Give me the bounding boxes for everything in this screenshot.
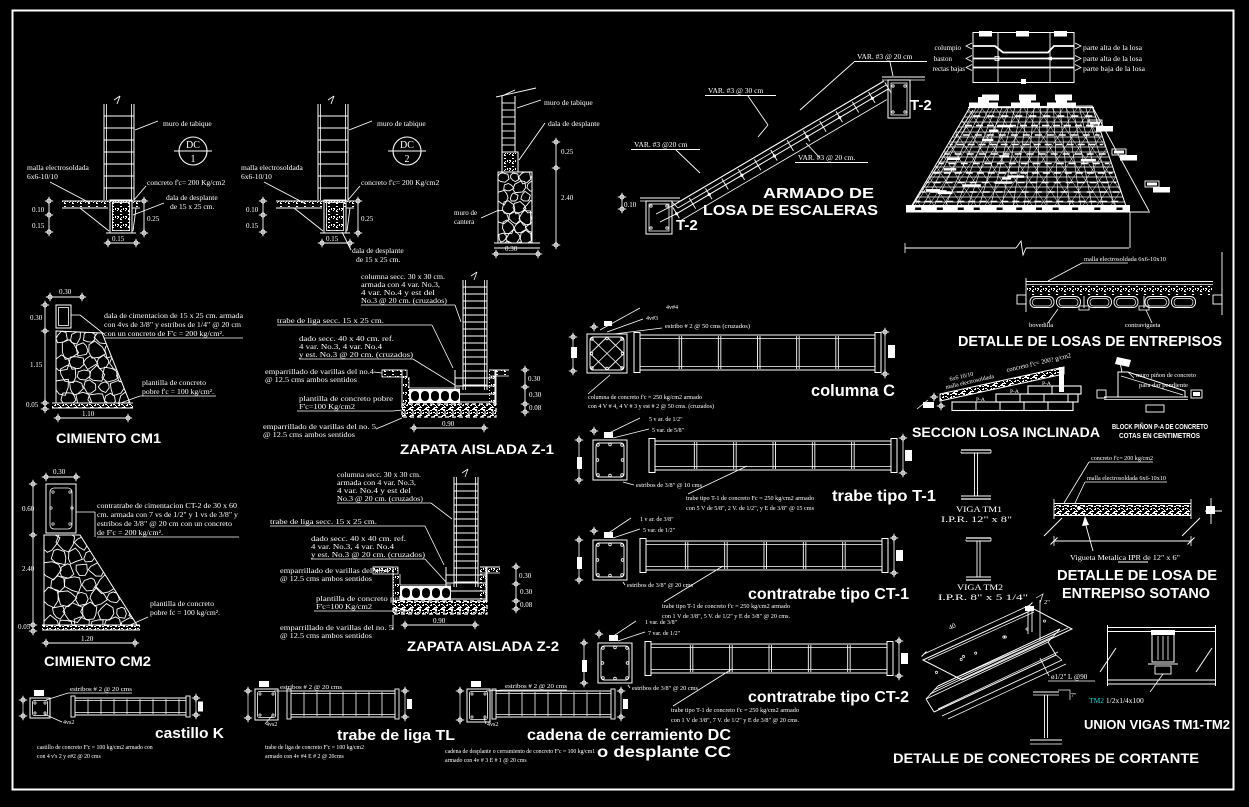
svg-text:para dar pendiente: para dar pendiente: [1139, 382, 1188, 389]
svg-text:0.05: 0.05: [18, 623, 31, 631]
svg-text:F'c=100 Kg/cm2: F'c=100 Kg/cm2: [299, 402, 355, 411]
svg-text:TM2 1/2x1/4x100: TM2 1/2x1/4x100: [1089, 696, 1144, 705]
svg-text:0.08: 0.08: [520, 601, 533, 609]
svg-text:I.P.R. 12" x 8": I.P.R. 12" x 8": [941, 514, 1012, 524]
svg-text:pobre fc = 100 kg/cm².: pobre fc = 100 kg/cm².: [150, 609, 220, 617]
svg-text:y est. No.3 @ 20 cm. (cruzad: y est. No.3 @ 20 cm. (cruzados): [299, 350, 414, 359]
svg-text:0.05: 0.05: [26, 401, 39, 409]
svg-text:DETALLE DE CONECTORES DE CORTA: DETALLE DE CONECTORES DE CORTANTE: [893, 751, 1199, 766]
svg-text:SECCION LOSA INCLINADA: SECCION LOSA INCLINADA: [912, 424, 1100, 440]
svg-text:4vs2: 4vs2: [266, 722, 277, 728]
svg-text:DETALLE DE LOSA DE: DETALLE DE LOSA DE: [1057, 567, 1217, 584]
svg-text:0.30: 0.30: [505, 245, 518, 253]
svg-text:@ 12.5 cms ambos sentidos: @ 12.5 cms ambos sentidos: [280, 631, 372, 640]
svg-text:P-A: P-A: [1042, 381, 1051, 387]
svg-text:trabe de liga de concreto F'c: trabe de liga de concreto F'c = 100 kg/c…: [265, 745, 364, 751]
svg-text:bovedilla: bovedilla: [1029, 322, 1053, 329]
svg-text:Vigueta Metalica IPR de 12: Vigueta Metalica IPR de 12" x 6": [1070, 553, 1180, 562]
svg-text:VAR. #3 @ 30 cm: VAR. #3 @ 30 cm: [708, 86, 763, 95]
svg-text:DC: DC: [400, 140, 414, 151]
svg-text:LOSA DE ESCALERAS: LOSA DE ESCALERAS: [703, 203, 878, 219]
svg-text:CIMIENTO CM2: CIMIENTO CM2: [44, 654, 151, 669]
svg-text:BLOCK PIÑON P-A DE CONCRETO: BLOCK PIÑON P-A DE CONCRETO: [1112, 422, 1208, 431]
svg-text:trabe tipo T-1: trabe tipo T-1: [832, 488, 936, 505]
svg-text:con 4 v's 2 y e#2 @ 20 cms: con 4 v's 2 y e#2 @ 20 cms: [37, 754, 101, 760]
svg-text:muro de tabique: muro de tabique: [544, 98, 593, 107]
svg-text:ENTREPISO SOTANO: ENTREPISO SOTANO: [1062, 585, 1210, 602]
svg-text:T-2: T-2: [910, 97, 932, 114]
svg-text:ø1/2" L @90: ø1/2" L @90: [1051, 673, 1088, 681]
svg-text:estribos # 2 @ 20 cms: estribos # 2 @ 20 cms: [505, 684, 568, 690]
svg-text:0.25: 0.25: [561, 148, 574, 156]
svg-text:0.15: 0.15: [112, 235, 125, 243]
svg-text:1.15: 1.15: [30, 361, 43, 369]
svg-text:0.30: 0.30: [30, 314, 43, 322]
svg-text:0.30: 0.30: [528, 375, 541, 383]
svg-text:4v#4: 4v#4: [666, 305, 678, 311]
svg-text:0.30: 0.30: [519, 572, 532, 580]
svg-text:VAR. #3 @ 20 cm: VAR. #3 @ 20 cm: [857, 52, 912, 61]
svg-text:de 15 x 25 cm.: de 15 x 25 cm.: [170, 202, 214, 211]
svg-text:@ 12.5 cms ambos sentidos: @ 12.5 cms ambos sentidos: [280, 574, 372, 583]
svg-text:muro de tabique: muro de tabique: [163, 119, 212, 128]
svg-text:0.10: 0.10: [624, 201, 637, 209]
svg-text:columna secc. 30 x 30 cm.: columna secc. 30 x 30 cm.: [337, 471, 421, 479]
svg-text:columna C: columna C: [811, 381, 895, 400]
svg-text:0.30: 0.30: [529, 391, 542, 399]
svg-text:0.30: 0.30: [520, 588, 533, 596]
svg-text:0.90: 0.90: [433, 617, 446, 625]
svg-text:cm. armada con 7 vs de 1/2" y: cm. armada con 7 vs de 1/2" y 1 vs de 3/…: [97, 511, 239, 519]
svg-text:armado con 4v #4 E # 2 @ 20cms: armado con 4v #4 E # 2 @ 20cms: [265, 754, 344, 760]
svg-text:4vs2: 4vs2: [63, 720, 74, 726]
svg-text:P-A: P-A: [1010, 389, 1019, 395]
svg-text:VIGA TM1: VIGA TM1: [956, 504, 1002, 514]
svg-text:7": 7": [1071, 693, 1077, 699]
svg-text:cadena de cerramiento DC: cadena de cerramiento DC: [527, 727, 731, 744]
svg-text:estribos # 2 @ 20 cms: estribos # 2 @ 20 cms: [70, 687, 133, 693]
svg-text:estribos # 2 @ 20 cms: estribos # 2 @ 20 cms: [280, 685, 343, 691]
svg-text:UNION VIGAS TM1-TM2: UNION VIGAS TM1-TM2: [1084, 717, 1230, 732]
svg-text:1 v ar. de 3/8": 1 v ar. de 3/8": [640, 517, 674, 523]
svg-text:estribos de 3/8" @ 10 cms: estribos de 3/8" @ 10 cms: [636, 483, 703, 489]
svg-text:0.15: 0.15: [326, 235, 339, 243]
svg-text:4vs2: 4vs2: [487, 722, 498, 728]
svg-text:con 1 V de 3/8", 7 V. de 1/2": con 1 V de 3/8", 7 V. de 1/2" y E de 3/8…: [671, 718, 800, 724]
svg-text:trabe de liga secc. 15 x 25 c: trabe de liga secc. 15 x 25 cm.: [270, 517, 377, 526]
svg-text:7 var. de 1/2": 7 var. de 1/2": [648, 631, 681, 637]
svg-text:contratrabe de cimentacion CT-: contratrabe de cimentacion CT-2 de 30 x …: [97, 502, 238, 510]
svg-text:0.08: 0.08: [529, 404, 542, 412]
svg-text:ZAPATA AISLADA Z-2: ZAPATA AISLADA Z-2: [407, 638, 559, 654]
svg-text:0.90: 0.90: [442, 420, 455, 428]
svg-text:@ 12.5 cms ambos sentidos: @ 12.5 cms ambos sentidos: [263, 430, 355, 439]
svg-text:2": 2": [1044, 599, 1050, 606]
svg-text:ARMADO DE: ARMADO DE: [763, 186, 874, 202]
svg-text:0.15: 0.15: [32, 222, 45, 230]
svg-text:columna de concreto f'c = 250: columna de concreto f'c = 250 kg/cm2 arm…: [588, 394, 702, 401]
svg-text:I.P.R. 8" x 5 1/4": I.P.R. 8" x 5 1/4": [938, 592, 1028, 602]
svg-text:contravigueta: contravigueta: [1125, 322, 1160, 329]
svg-text:ZAPATA AISLADA Z-1: ZAPATA AISLADA Z-1: [400, 441, 554, 457]
svg-text:malla electrosoldada 6x6-10x10: malla electrosoldada 6x6-10x10: [1087, 475, 1166, 482]
svg-text:y est. No.3 @ 20 cm. (cruzad: y est. No.3 @ 20 cm. (cruzados): [311, 550, 426, 559]
svg-text:0.25: 0.25: [361, 215, 374, 223]
svg-text:CIMIENTO CM1: CIMIENTO CM1: [56, 431, 162, 446]
svg-text:muro de: muro de: [454, 209, 477, 217]
svg-text:pobre f'c = 100 kg/cm².: pobre f'c = 100 kg/cm².: [142, 388, 214, 396]
svg-text:armado con 4v # 3 E # 1 @ 20 c: armado con 4v # 3 E # 1 @ 20 cms: [445, 758, 527, 764]
svg-text:P-A: P-A: [976, 397, 985, 403]
svg-text:trabe tipo T-1 de concreto f'c: trabe tipo T-1 de concreto f'c = 250 kg/…: [671, 707, 799, 714]
svg-text:0.15: 0.15: [246, 222, 259, 230]
svg-text:concreto f'c= 200 Kg/cm2: concreto f'c= 200 Kg/cm2: [147, 178, 226, 187]
svg-text:parte alta de la losa: parte alta de la losa: [1083, 44, 1143, 52]
svg-text:con 5 V de 5/8", 2 V. de 1/2",: con 5 V de 5/8", 2 V. de 1/2", y E de 3/…: [686, 506, 815, 512]
svg-text:trabe tipo T-1 de concreto Fc: trabe tipo T-1 de concreto Fc = 250 kg/c…: [686, 496, 814, 502]
svg-text:malla electrosoldada 6x6-10x10: malla electrosoldada 6x6-10x10: [1084, 256, 1166, 263]
svg-text:1: 1: [191, 154, 196, 165]
svg-text:4 var. No.4 y est del: 4 var. No.4 y est del: [337, 487, 411, 495]
svg-text:1 var. de 3/8": 1 var. de 3/8": [645, 620, 678, 626]
svg-text:con 1 V de 3/8", 5 V. de 1/2": con 1 V de 3/8", 5 V. de 1/2" y E de 3/8…: [662, 614, 791, 620]
svg-text:F'c=100 Kg/cm2: F'c=100 Kg/cm2: [316, 602, 372, 611]
svg-text:castillo de concreto F'c = 100: castillo de concreto F'c = 100 kg/cm2 ar…: [37, 745, 153, 751]
svg-text:COTAS EN CENTIMETROS: COTAS EN CENTIMETROS: [1119, 431, 1200, 440]
svg-text:0.10: 0.10: [32, 206, 45, 214]
svg-text:de F'c = 200 kg/cm².: de F'c = 200 kg/cm².: [97, 529, 163, 537]
svg-text:dala de desplante: dala de desplante: [548, 119, 600, 128]
svg-text:baston: baston: [934, 55, 953, 63]
svg-text:T-2: T-2: [676, 217, 698, 234]
svg-text:1.10: 1.10: [82, 410, 95, 418]
svg-text:VIGA TM2: VIGA TM2: [957, 582, 1003, 592]
svg-text:No.3 @ 20 cm. (cruzados): No.3 @ 20 cm. (cruzados): [337, 495, 424, 503]
svg-text:2: 2: [405, 154, 410, 165]
svg-text:5 var. de 1/2": 5 var. de 1/2": [643, 528, 676, 534]
svg-text:2.40: 2.40: [561, 194, 574, 202]
svg-text:o desplante CC: o desplante CC: [597, 744, 732, 761]
svg-text:4 var. No.4 y est del: 4 var. No.4 y est del: [361, 289, 435, 297]
svg-text:malla electrosoldada: malla electrosoldada: [27, 163, 90, 172]
svg-text:cantera: cantera: [454, 218, 475, 226]
svg-text:@ 12.5 cms ambos sentidos: @ 12.5 cms ambos sentidos: [265, 375, 357, 384]
svg-text:estribos de 3/8" @ 20 cms: estribos de 3/8" @ 20 cms: [627, 583, 694, 589]
svg-text:4v#3: 4v#3: [646, 316, 658, 322]
svg-text:2.40: 2.40: [22, 565, 35, 573]
svg-text:1.20: 1.20: [81, 635, 94, 643]
svg-text:de 15 x 25 cm.: de 15 x 25 cm.: [356, 255, 400, 264]
svg-text:con 4vs de 3/8" y estribos de: con 4vs de 3/8" y estribos de 1/4" @ 20 …: [104, 321, 242, 329]
svg-text:muro piñon de concreto: muro piñon de concreto: [1136, 372, 1196, 379]
svg-text:muro de tabique: muro de tabique: [377, 119, 426, 128]
svg-text:estribos de 3/8" @ 20 cm con: estribos de 3/8" @ 20 cm con un concreto: [97, 520, 233, 528]
svg-text:plantilla de concreto: plantilla de concreto: [150, 600, 215, 608]
svg-text:VAR. #3 @ 20 cm.: VAR. #3 @ 20 cm.: [798, 153, 855, 162]
svg-text:DETALLE DE LOSAS DE ENTREPISOS: DETALLE DE LOSAS DE ENTREPISOS: [958, 334, 1222, 350]
svg-text:trabe tipo T-1 de concreto f'c: trabe tipo T-1 de concreto f'c = 250 kg/…: [662, 603, 790, 610]
svg-text:dala de desplante: dala de desplante: [166, 193, 218, 202]
svg-text:estribo # 2 @ 50 cms (cruzados: estribo # 2 @ 50 cms (cruzados): [665, 323, 750, 330]
svg-text:rectas bajas: rectas bajas: [933, 65, 966, 73]
svg-text:6x6-10/10: 6x6-10/10: [241, 172, 272, 181]
svg-text:malla electrosoldada: malla electrosoldada: [241, 163, 304, 172]
svg-text:dala de cimentacion de 15 x 25: dala de cimentacion de 15 x 25 cm. armad…: [104, 312, 244, 320]
svg-text:con 4 V # 4, 4 V # 3 y est #: con 4 V # 4, 4 V # 3 y est # 2 @ 50 cms.…: [588, 403, 714, 410]
svg-text:0.30: 0.30: [59, 288, 72, 296]
svg-text:0.10: 0.10: [246, 206, 259, 214]
svg-text:No.3 @ 20 cm. (cruzados): No.3 @ 20 cm. (cruzados): [361, 297, 448, 305]
svg-text:columpio: columpio: [935, 44, 962, 52]
svg-text:0.30: 0.30: [53, 468, 66, 476]
svg-text:5 var. de 5/8": 5 var. de 5/8": [652, 428, 685, 434]
svg-text:concreto f'c= 200 kg/cm2: concreto f'c= 200 kg/cm2: [1091, 455, 1153, 462]
svg-text:parte baja de la losa: parte baja de la losa: [1083, 65, 1146, 73]
svg-text:dala de desplante: dala de desplante: [352, 246, 404, 255]
svg-text:5 v ar. de 1/2": 5 v ar. de 1/2": [649, 417, 683, 423]
svg-text:parte alta de la losa: parte alta de la losa: [1083, 55, 1143, 63]
svg-text:0.60: 0.60: [22, 505, 35, 513]
svg-text:6x6-10/10: 6x6-10/10: [27, 172, 58, 181]
svg-text:estribos de 3/8" @ 20 cms: estribos de 3/8" @ 20 cms: [632, 686, 699, 692]
svg-text:DC: DC: [186, 140, 200, 151]
svg-text:plantilla de concreto: plantilla de concreto: [142, 379, 207, 387]
svg-text:contratrabe tipo CT-1: contratrabe tipo CT-1: [748, 586, 909, 603]
svg-text:cadena de desplante o cerramie: cadena de desplante o cerramiento de con…: [445, 749, 595, 755]
svg-text:columna secc. 30 x 30 cm.: columna secc. 30 x 30 cm.: [361, 273, 445, 281]
svg-text:VAR. #3 @20 cm: VAR. #3 @20 cm: [634, 140, 688, 149]
svg-text:con un concreto de F'c = 200 k: con un concreto de F'c = 200 kg/cm².: [104, 330, 224, 338]
svg-text:0.25: 0.25: [147, 215, 160, 223]
svg-text:trabe de liga secc. 15 x 25 c: trabe de liga secc. 15 x 25 cm.: [277, 316, 384, 325]
svg-text:contratrabe tipo CT-2: contratrabe tipo CT-2: [748, 689, 909, 706]
svg-text:armada con 4 var. No.3,: armada con 4 var. No.3,: [361, 281, 440, 289]
svg-text:armada con 4 var. No.3,: armada con 4 var. No.3,: [337, 479, 416, 487]
svg-text:concreto f'c= 200 Kg/cm2: concreto f'c= 200 Kg/cm2: [361, 178, 440, 187]
svg-text:castillo K: castillo K: [155, 725, 224, 742]
svg-text:trabe de liga TL: trabe de liga TL: [337, 727, 455, 744]
